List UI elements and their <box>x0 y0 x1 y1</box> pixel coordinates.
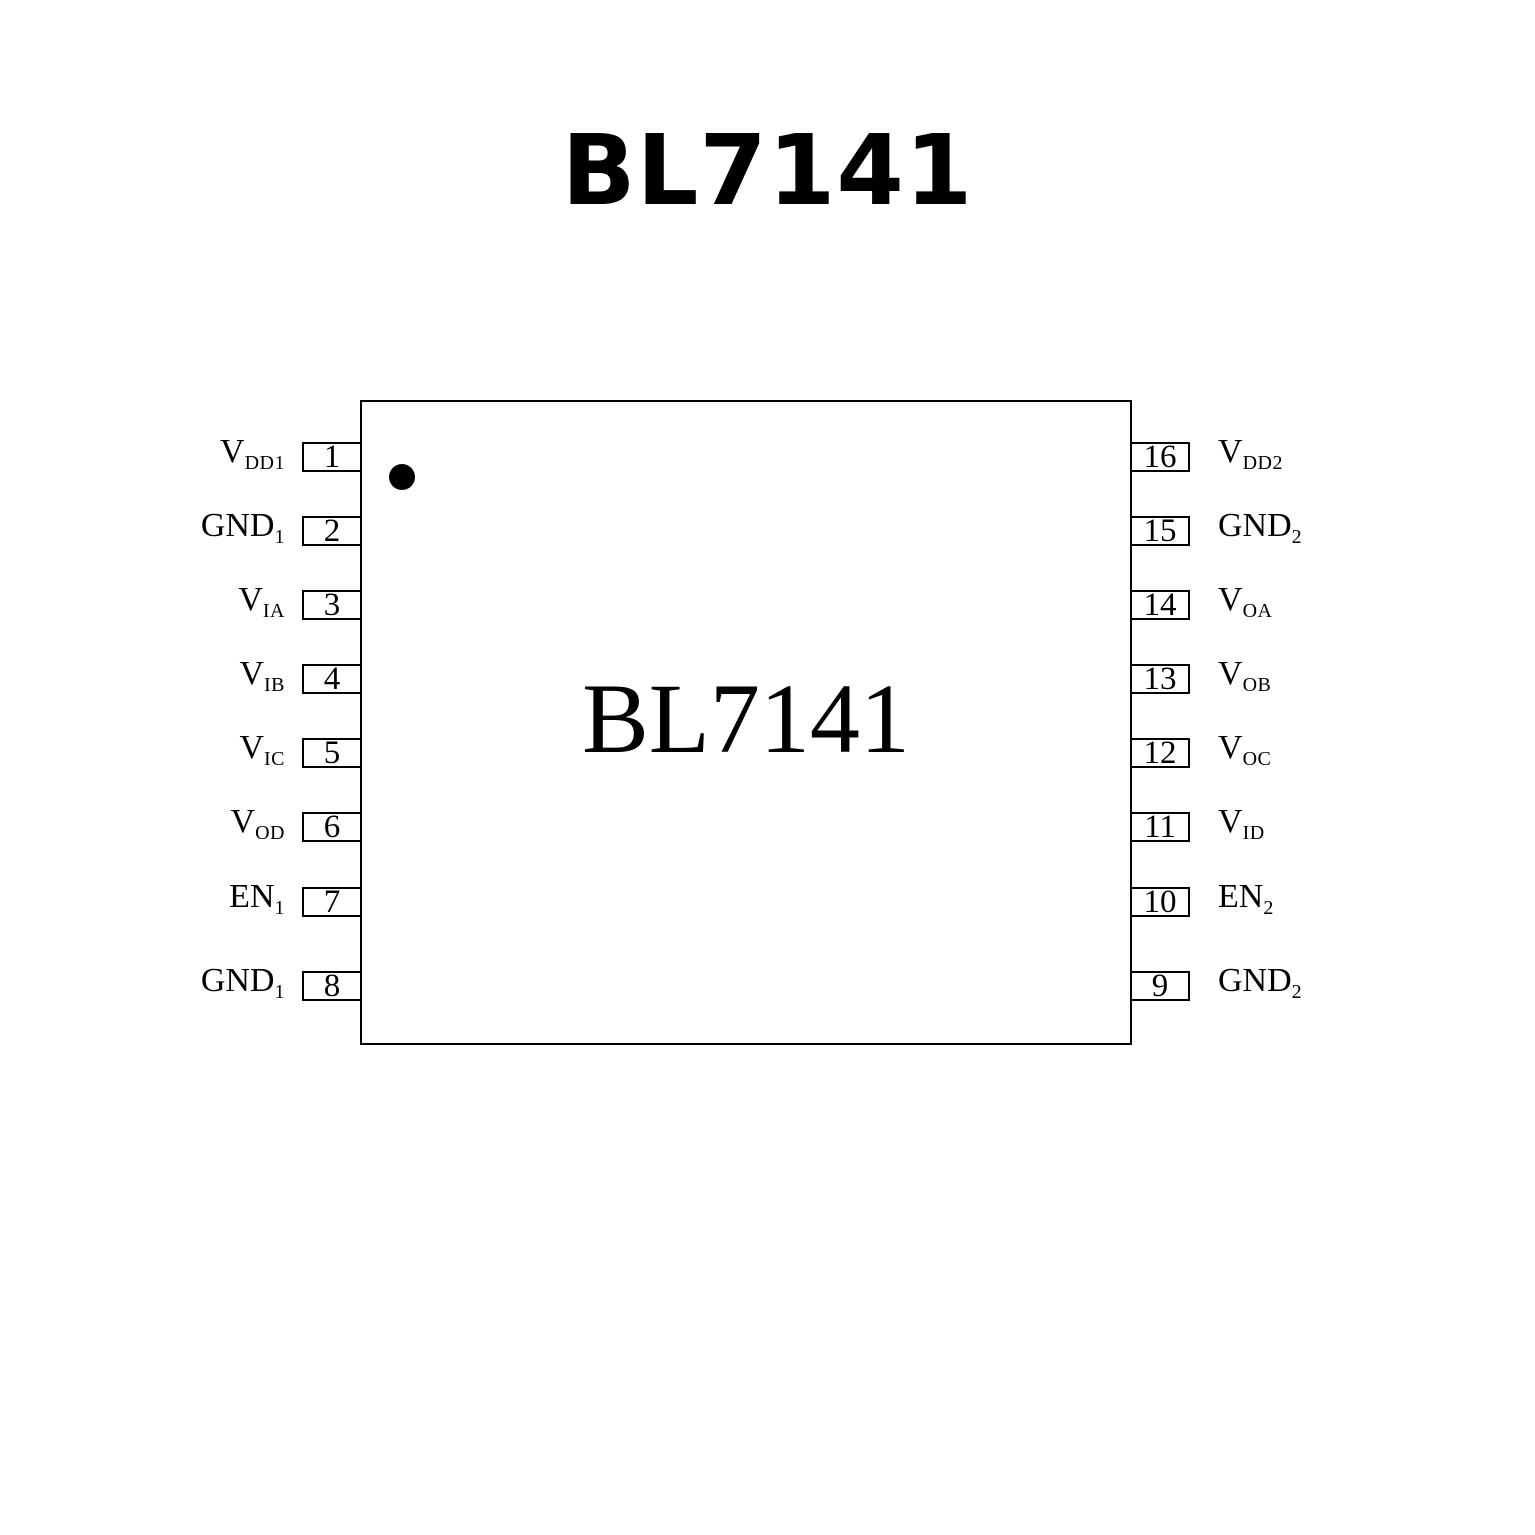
pin-row: 9 GND2 <box>1130 971 1420 1001</box>
page-title: BL7141 <box>0 106 1535 236</box>
pin-subscript: OD <box>255 822 285 844</box>
pin-name: V <box>1218 655 1243 692</box>
pin-row: 10 EN2 <box>1130 887 1420 917</box>
pin-row: 16 VDD2 <box>1130 442 1420 472</box>
pin-label: VIC <box>150 733 302 774</box>
pin-number-box: 3 <box>302 590 362 620</box>
pin-number-box: 13 <box>1130 664 1190 694</box>
pin-name: V <box>239 655 264 692</box>
chip-center-label: BL7141 <box>362 664 1130 774</box>
pin-name: GND <box>1218 962 1292 999</box>
pin-subscript: IC <box>264 748 285 770</box>
pin-label: EN2 <box>1190 882 1274 923</box>
pin-subscript: 1 <box>275 981 286 1003</box>
pin-label: VID <box>1190 807 1265 848</box>
pin-number: 13 <box>1144 666 1177 692</box>
pin-row: 15 GND2 <box>1130 516 1420 546</box>
pin-subscript: 2 <box>1292 981 1303 1003</box>
pin-label: EN1 <box>150 882 302 923</box>
pin-number: 14 <box>1144 592 1177 618</box>
pin-number-box: 1 <box>302 442 362 472</box>
pin-subscript: DD1 <box>245 452 285 474</box>
pin-number: 1 <box>324 444 341 470</box>
pin-number-box: 12 <box>1130 738 1190 768</box>
pin-label: GND1 <box>150 966 302 1007</box>
pin-subscript: DD2 <box>1243 452 1283 474</box>
pin-name: V <box>239 729 264 766</box>
pin-number-box: 5 <box>302 738 362 768</box>
pin-number: 5 <box>324 740 341 766</box>
pin-number-box: 6 <box>302 812 362 842</box>
pin-name: V <box>1218 729 1243 766</box>
pin-number-box: 7 <box>302 887 362 917</box>
pin-row: VIB 4 <box>150 664 362 694</box>
pin-row: VOD 6 <box>150 812 362 842</box>
pin1-indicator-dot <box>389 464 415 490</box>
pin-number-box: 9 <box>1130 971 1190 1001</box>
pin-label: VOB <box>1190 659 1271 700</box>
pin-number-box: 14 <box>1130 590 1190 620</box>
pin-row: VDD1 1 <box>150 442 362 472</box>
pin-number: 7 <box>324 889 341 915</box>
pin-row: EN1 7 <box>150 887 362 917</box>
pin-number: 2 <box>324 518 341 544</box>
pin-subscript: 2 <box>1292 526 1303 548</box>
pin-label: GND2 <box>1190 511 1302 552</box>
pin-label: VIA <box>150 585 302 626</box>
pin-name: V <box>231 803 256 840</box>
pin-label: VDD1 <box>150 437 302 478</box>
pin-subscript: IA <box>263 600 285 622</box>
pin-label: GND1 <box>150 511 302 552</box>
pin-subscript: 2 <box>1263 897 1274 919</box>
pin-name: EN <box>229 878 274 915</box>
pin-number: 3 <box>324 592 341 618</box>
pin-subscript: IB <box>264 674 285 696</box>
pin-number: 11 <box>1144 814 1176 840</box>
pin-label: VDD2 <box>1190 437 1283 478</box>
pin-label: VOC <box>1190 733 1271 774</box>
pin-number-box: 10 <box>1130 887 1190 917</box>
pin-row: 11 VID <box>1130 812 1420 842</box>
pin-number-box: 15 <box>1130 516 1190 546</box>
pin-row: VIA 3 <box>150 590 362 620</box>
pin-subscript: OB <box>1243 674 1272 696</box>
pin-number-box: 2 <box>302 516 362 546</box>
pin-number: 10 <box>1144 889 1177 915</box>
pin-name: GND <box>201 507 275 544</box>
pin-name: V <box>220 433 245 470</box>
pin-row: 14 VOA <box>1130 590 1420 620</box>
pinout-page: BL7141 BL7141 VDD1 1 GND1 2 VIA 3 VIB 4 … <box>0 0 1535 1535</box>
pin-row: GND1 8 <box>150 971 362 1001</box>
pin-name: GND <box>201 962 275 999</box>
pin-name: V <box>1218 581 1243 618</box>
pin-subscript: 1 <box>275 897 286 919</box>
pin-subscript: OA <box>1243 600 1273 622</box>
pin-label: VOD <box>150 807 302 848</box>
pin-row: GND1 2 <box>150 516 362 546</box>
pin-number: 16 <box>1144 444 1177 470</box>
pin-number-box: 8 <box>302 971 362 1001</box>
pin-name: V <box>238 581 263 618</box>
pin-number-box: 16 <box>1130 442 1190 472</box>
pin-row: VIC 5 <box>150 738 362 768</box>
pin-label: GND2 <box>1190 966 1302 1007</box>
pin-label: VOA <box>1190 585 1272 626</box>
pin-name: V <box>1218 803 1243 840</box>
pin-subscript: 1 <box>275 526 286 548</box>
pin-number-box: 11 <box>1130 812 1190 842</box>
pin-number: 4 <box>324 666 341 692</box>
pin-subscript: ID <box>1243 822 1265 844</box>
pin-number: 9 <box>1152 973 1169 999</box>
pin-number: 6 <box>324 814 341 840</box>
pin-name: EN <box>1218 878 1263 915</box>
pin-number: 15 <box>1144 518 1177 544</box>
pin-subscript: OC <box>1243 748 1272 770</box>
pin-name: V <box>1218 433 1243 470</box>
pin-row: 12 VOC <box>1130 738 1420 768</box>
pin-number-box: 4 <box>302 664 362 694</box>
pin-row: 13 VOB <box>1130 664 1420 694</box>
pin-name: GND <box>1218 507 1292 544</box>
pin-number: 8 <box>324 973 341 999</box>
chip-body: BL7141 <box>360 400 1132 1045</box>
pin-number: 12 <box>1144 740 1177 766</box>
pin-label: VIB <box>150 659 302 700</box>
